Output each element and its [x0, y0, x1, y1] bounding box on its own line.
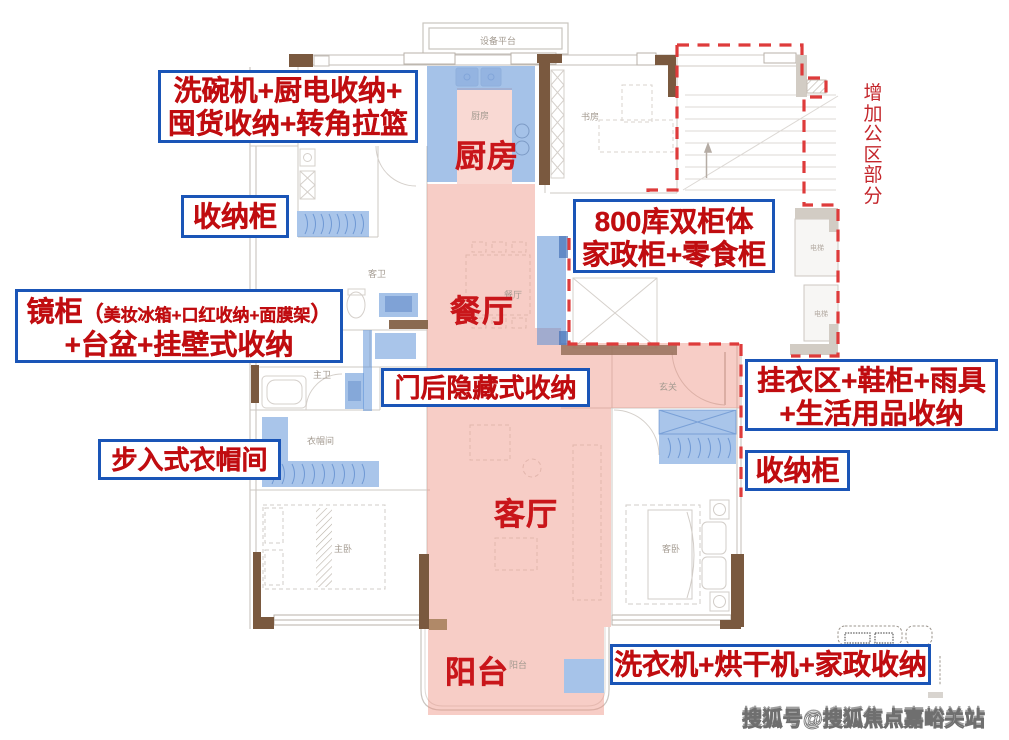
svg-text:电梯: 电梯 [810, 243, 824, 252]
svg-text:电梯: 电梯 [814, 309, 828, 318]
svg-text:衣帽间: 衣帽间 [307, 435, 334, 446]
svg-text:设备平台: 设备平台 [480, 35, 516, 46]
svg-text:客卧: 客卧 [662, 543, 680, 554]
svg-text:厨房: 厨房 [471, 110, 489, 121]
svg-text:主卧: 主卧 [334, 543, 352, 554]
svg-text:玄关: 玄关 [659, 381, 677, 392]
svg-text:主卫: 主卫 [313, 369, 331, 380]
svg-text:书房: 书房 [581, 111, 599, 122]
svg-text:客卫: 客卫 [368, 268, 386, 279]
svg-text:阳台: 阳台 [509, 659, 527, 670]
